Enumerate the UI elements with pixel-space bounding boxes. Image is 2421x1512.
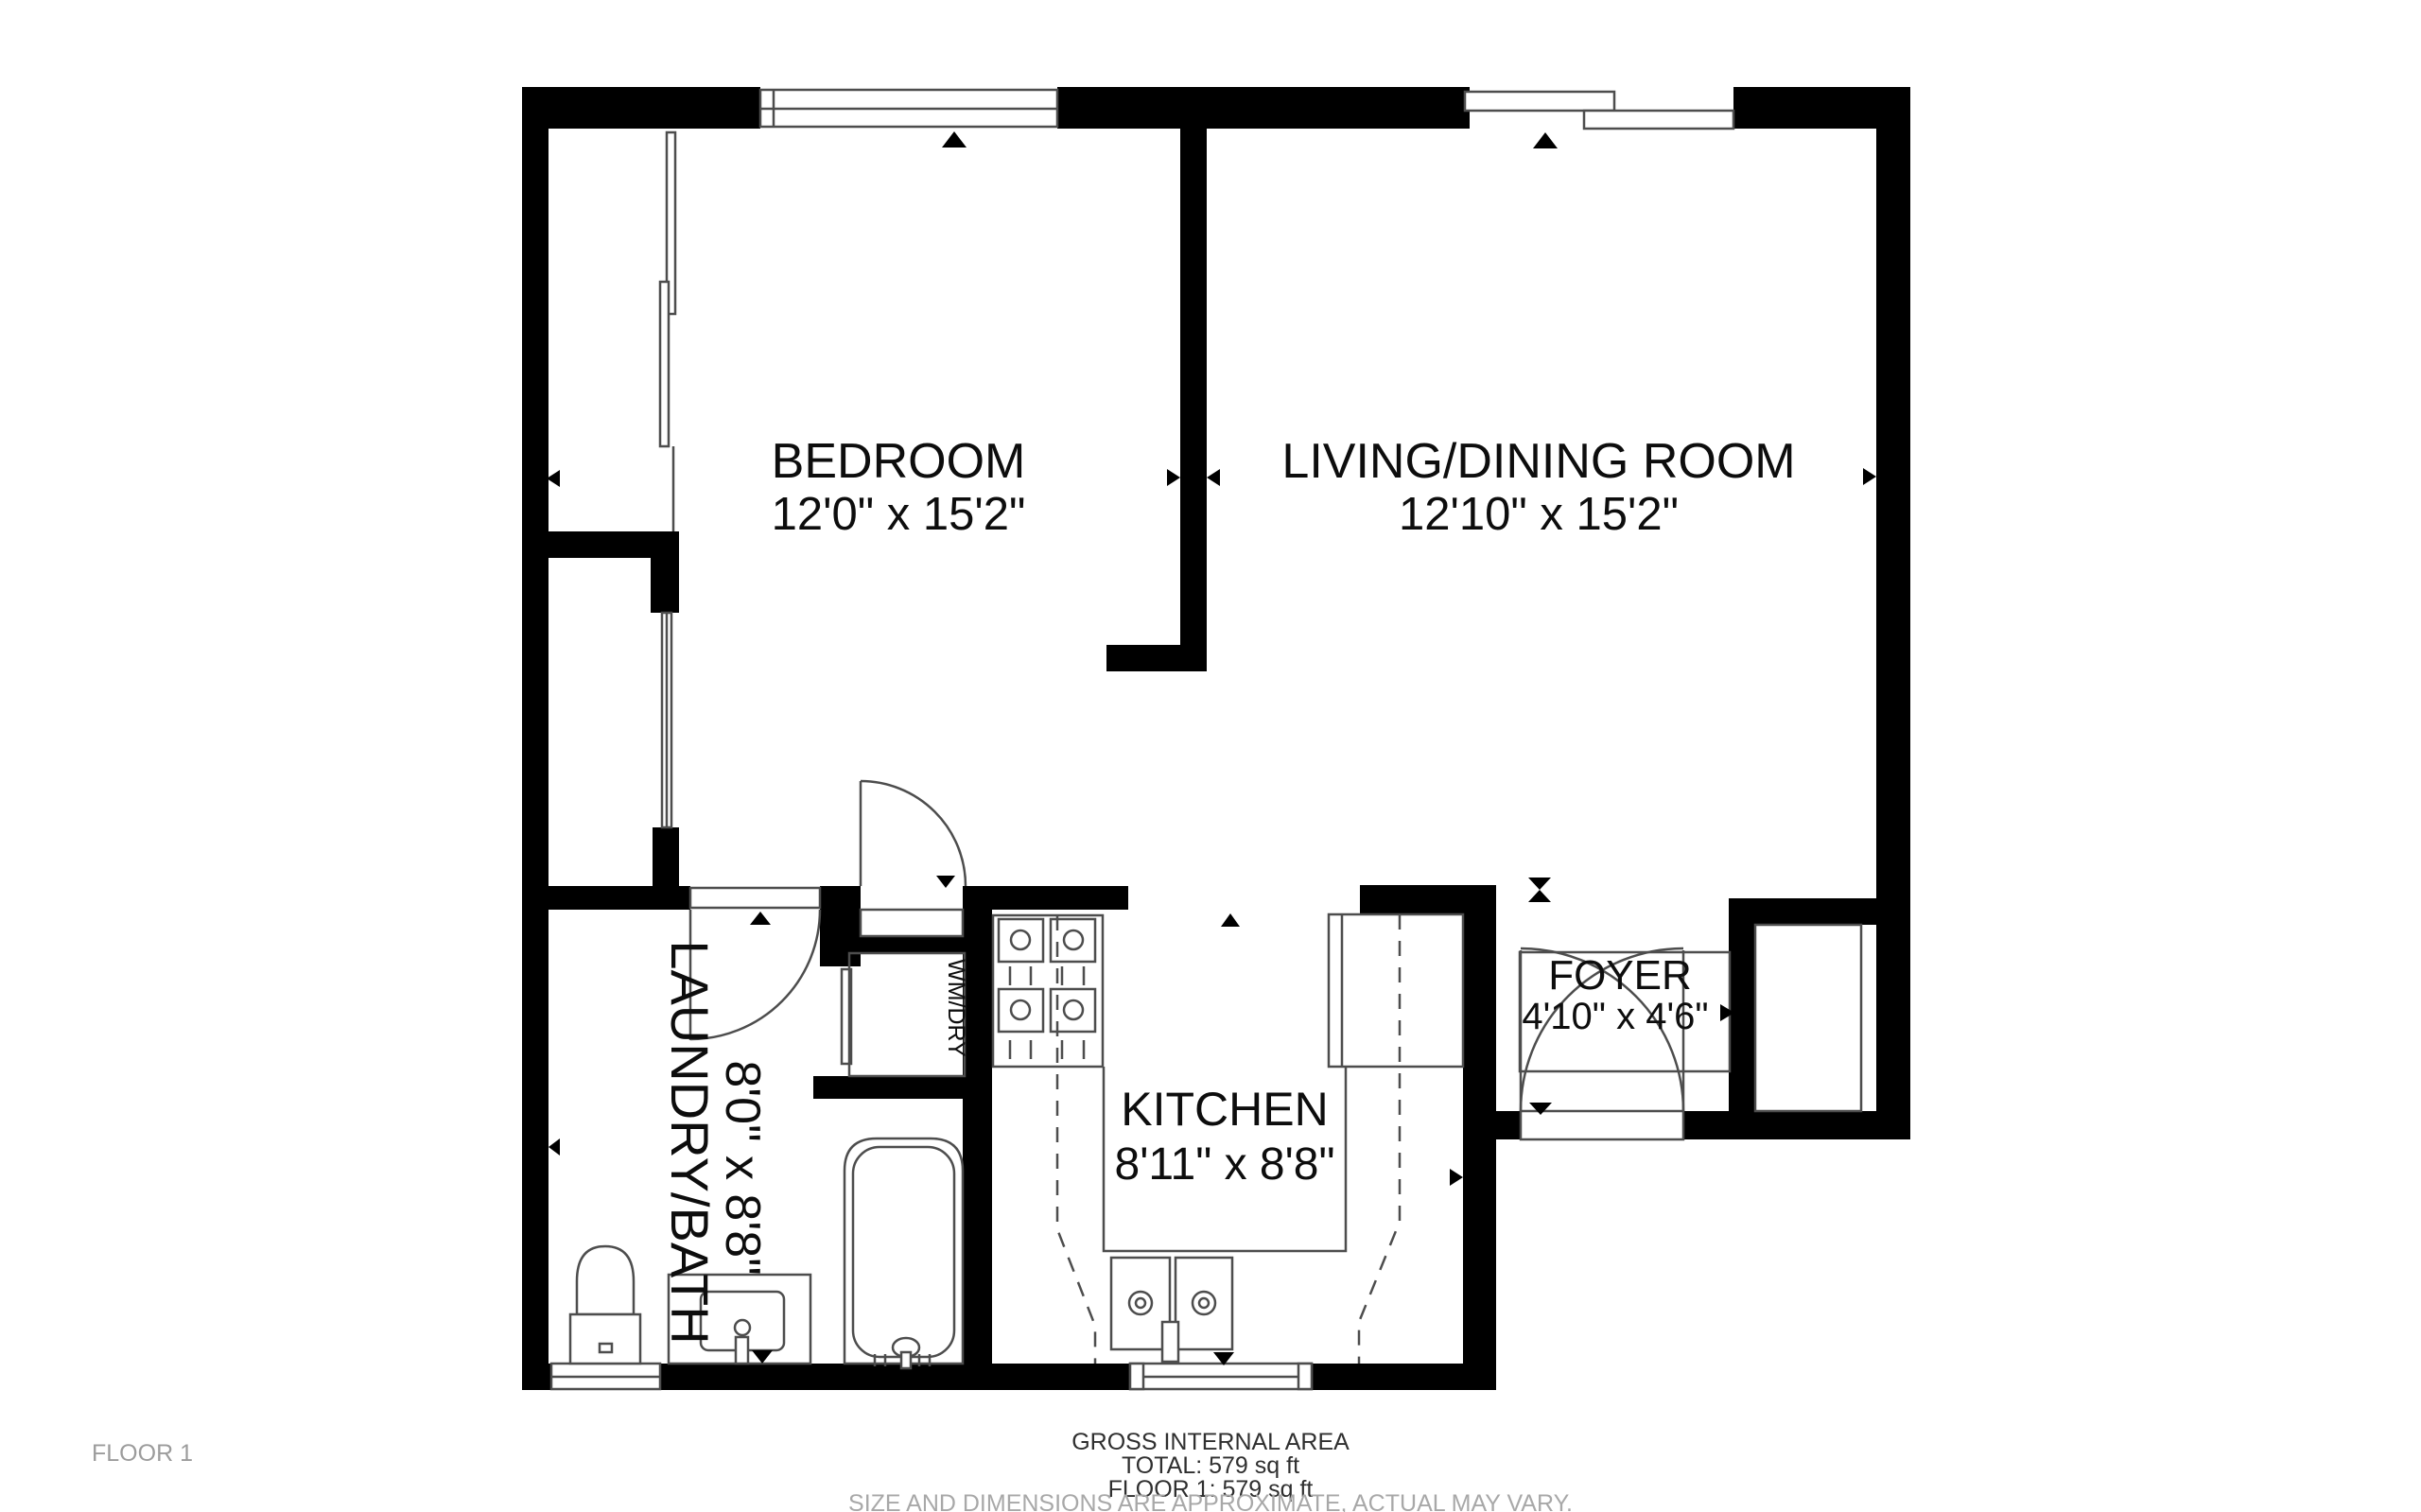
room-dims-bedroom: 12'0" x 15'2" (772, 489, 1026, 540)
living-kitchen-door-icon (861, 781, 966, 936)
dimension-arrow-left-icon (1207, 469, 1220, 486)
dimension-arrow-left-icon (549, 1138, 560, 1156)
bathroom-window-icon (551, 1364, 660, 1389)
kitchen-window-icon (1130, 1364, 1312, 1389)
bathtub-icon (845, 1138, 963, 1368)
floor-plan-canvas: BEDROOM 12'0" x 15'2" LIVING/DINING ROOM… (0, 0, 2421, 1512)
gross-internal-area-title: GROSS INTERNAL AREA (1071, 1429, 1350, 1455)
floor-label: FLOOR 1 (92, 1440, 193, 1467)
total-area: TOTAL: 579 sq ft (1122, 1452, 1299, 1479)
footer: FLOOR 1 GROSS INTERNAL AREA TOTAL: 579 s… (92, 1429, 1573, 1512)
bedroom-top-window-icon (760, 90, 1057, 127)
room-label-foyer: FOYER (1548, 952, 1692, 999)
living-top-sliding-window-icon (1465, 92, 1733, 129)
window-marker-up-icon (1533, 132, 1558, 148)
opening-marker-hourglass-icon (1528, 878, 1551, 890)
door-marker-down-icon (936, 876, 955, 888)
toilet-icon (570, 1246, 640, 1364)
kitchen-sink-icon (1111, 1258, 1232, 1362)
dimension-arrow-left-icon (547, 470, 560, 487)
room-dims-laundry-bath: 8'0" x 8'8" (715, 1060, 770, 1275)
room-label-wm-dry: WM/DRY (943, 959, 969, 1057)
room-dims-living-dining: 12'10" x 15'2" (1399, 489, 1679, 540)
room-label-kitchen: KITCHEN (1121, 1083, 1328, 1136)
stove-icon (993, 915, 1103, 1067)
dimension-arrow-right-icon (1863, 468, 1876, 485)
foyer-closet-icon (1755, 925, 1861, 1111)
bedroom-left-upper-window-icon (660, 132, 675, 531)
window-marker-up-icon (942, 131, 967, 148)
opening-marker-up-icon (1221, 913, 1240, 927)
room-label-living-dining: LIVING/DINING ROOM (1281, 434, 1795, 489)
refrigerator-icon (1329, 914, 1463, 1067)
room-dims-kitchen: 8'11" x 8'8" (1115, 1139, 1335, 1190)
floor-plan-page: BEDROOM 12'0" x 15'2" LIVING/DINING ROOM… (0, 0, 2421, 1512)
room-dims-foyer: 4'10" x 4'6" (1522, 996, 1708, 1037)
room-label-bedroom: BEDROOM (772, 434, 1026, 489)
dimension-arrow-right-icon (1450, 1169, 1463, 1186)
door-marker-up-icon (750, 912, 771, 925)
bedroom-left-lower-window-icon (662, 613, 671, 827)
disclaimer: SIZE AND DIMENSIONS ARE APPROXIMATE, ACT… (848, 1490, 1573, 1512)
opening-marker-hourglass-icon (1528, 890, 1551, 902)
dimension-arrow-right-icon (1167, 469, 1180, 486)
room-label-laundry-bath: LAUNDRY/BATH (660, 940, 720, 1344)
